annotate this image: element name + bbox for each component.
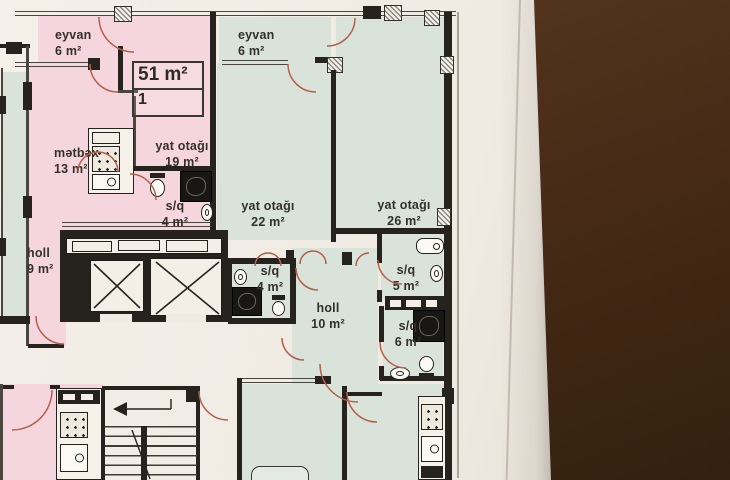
sink-icon: [430, 265, 443, 282]
unit-info-card: 51 m² 1: [132, 61, 204, 117]
room-name: yat otağı: [155, 139, 208, 153]
cabinet: [421, 466, 443, 478]
paper-sheet: 51 m² 1 eyvan 6 m² mətbəx 13 m² yat otağ…: [0, 0, 730, 480]
room-name: holl: [316, 301, 339, 315]
door-arc: [199, 391, 228, 420]
wall: [346, 392, 382, 396]
wall: [363, 6, 381, 19]
room-area: 9 m²: [27, 262, 54, 276]
room-label-yat19: yat otağı 19 m²: [150, 138, 214, 170]
room-area: 26 m²: [387, 214, 421, 228]
room-name: holl: [27, 246, 50, 260]
room-area: 6 m²: [55, 44, 82, 58]
photo-of-floor-plan: 51 m² 1 eyvan 6 m² mətbəx 13 m² yat otağ…: [0, 0, 730, 480]
cabinet: [389, 299, 402, 308]
cabinet: [62, 393, 76, 401]
room-label-eyvan-left: eyvan 6 m²: [55, 27, 91, 59]
wall: [0, 316, 30, 324]
room-name: mətbəx: [54, 146, 99, 160]
wall: [88, 58, 100, 70]
elevator-door: [166, 314, 206, 322]
wall: [50, 385, 60, 389]
column: [384, 5, 402, 21]
room-area: 22 m²: [251, 215, 285, 229]
unit-area: 51 m²: [134, 63, 202, 90]
room-area: 6 m²: [395, 335, 422, 349]
column: [424, 10, 440, 26]
balcony-rail: [222, 60, 288, 65]
room-name: yat otağı: [377, 198, 430, 212]
room-label-yat22: yat otağı 22 m²: [234, 198, 302, 230]
room-name: s/q: [166, 199, 185, 213]
room-label-metbex: mətbəx 13 m²: [54, 145, 99, 177]
room-label-sq4-left: s/q 4 m²: [148, 198, 202, 230]
wall: [28, 344, 64, 348]
kitchen-sink-icon: [60, 444, 88, 472]
stairs-arrowhead: [113, 402, 127, 416]
toilet-icon: [150, 173, 165, 197]
toilet-icon: [272, 295, 285, 316]
room-label-yat26: yat otağı 26 m²: [369, 197, 439, 229]
column: [437, 208, 451, 226]
shaft-vent: [72, 241, 112, 252]
door-post: [286, 250, 294, 263]
sink-icon: [201, 204, 213, 221]
wall: [380, 376, 446, 381]
wall: [315, 376, 331, 384]
window-pier: [23, 196, 32, 218]
stove-icon: [60, 412, 88, 438]
wall: [6, 42, 22, 54]
wall: [237, 378, 317, 383]
room-area: 6 m²: [238, 44, 265, 58]
bathtub-icon: [416, 238, 444, 254]
room-label-sq6: s/q 6 m²: [384, 318, 432, 350]
elevator-icon: [90, 260, 144, 312]
unit-number: 1: [134, 90, 202, 110]
shaft-vent: [118, 240, 160, 251]
stairs-icon: [105, 426, 197, 480]
room-label-sq4-mid: s/q 4 m²: [246, 263, 294, 295]
window-pier: [23, 82, 32, 110]
wall: [228, 318, 296, 324]
room-area: 4 m²: [257, 280, 284, 294]
room-area: 4 m²: [162, 215, 189, 229]
elevator-icon: [150, 258, 222, 316]
cabinet: [405, 299, 422, 308]
column: [114, 6, 132, 22]
window-pier: [0, 238, 6, 256]
paper-fold-line: [506, 0, 521, 480]
paper-plan-edge: [457, 12, 459, 478]
column: [440, 56, 454, 74]
kitchen-sink-icon: [421, 436, 443, 462]
room-name: eyvan: [55, 28, 91, 42]
door-post: [186, 386, 198, 402]
wall: [377, 233, 382, 263]
room-area: 10 m²: [311, 317, 345, 331]
toilet-icon: [419, 356, 434, 378]
stove-icon: [421, 404, 443, 430]
room-name: s/q: [261, 264, 280, 278]
room-name: s/q: [397, 263, 416, 277]
sink-icon: [390, 367, 410, 380]
window-pier: [0, 96, 6, 114]
wall: [237, 378, 242, 480]
room-area: 19 m²: [165, 155, 199, 169]
wall: [0, 384, 3, 480]
elevator-door: [100, 314, 132, 322]
wall: [342, 386, 347, 480]
stairs-direction-arrow: [125, 399, 171, 409]
furniture: [251, 466, 309, 480]
wall: [331, 70, 336, 242]
room-label-sq5: s/q 5 m²: [382, 262, 430, 294]
room-name: eyvan: [238, 28, 274, 42]
room-label-holl10: holl 10 m²: [300, 300, 356, 332]
room-area: 13 m²: [54, 162, 88, 176]
cabinet: [425, 299, 438, 308]
room-label-eyvan-right: eyvan 6 m²: [238, 27, 274, 59]
cabinet: [80, 393, 94, 401]
door-post: [342, 252, 352, 265]
wall: [118, 46, 123, 92]
room-label-holl9: holl 9 m²: [27, 245, 54, 277]
room-area: 5 m²: [393, 279, 420, 293]
stair-divider: [141, 426, 147, 480]
shaft-vent: [166, 240, 208, 252]
cabinet: [92, 132, 120, 144]
room-name: yat otağı: [241, 199, 294, 213]
room-name: s/q: [399, 319, 418, 333]
